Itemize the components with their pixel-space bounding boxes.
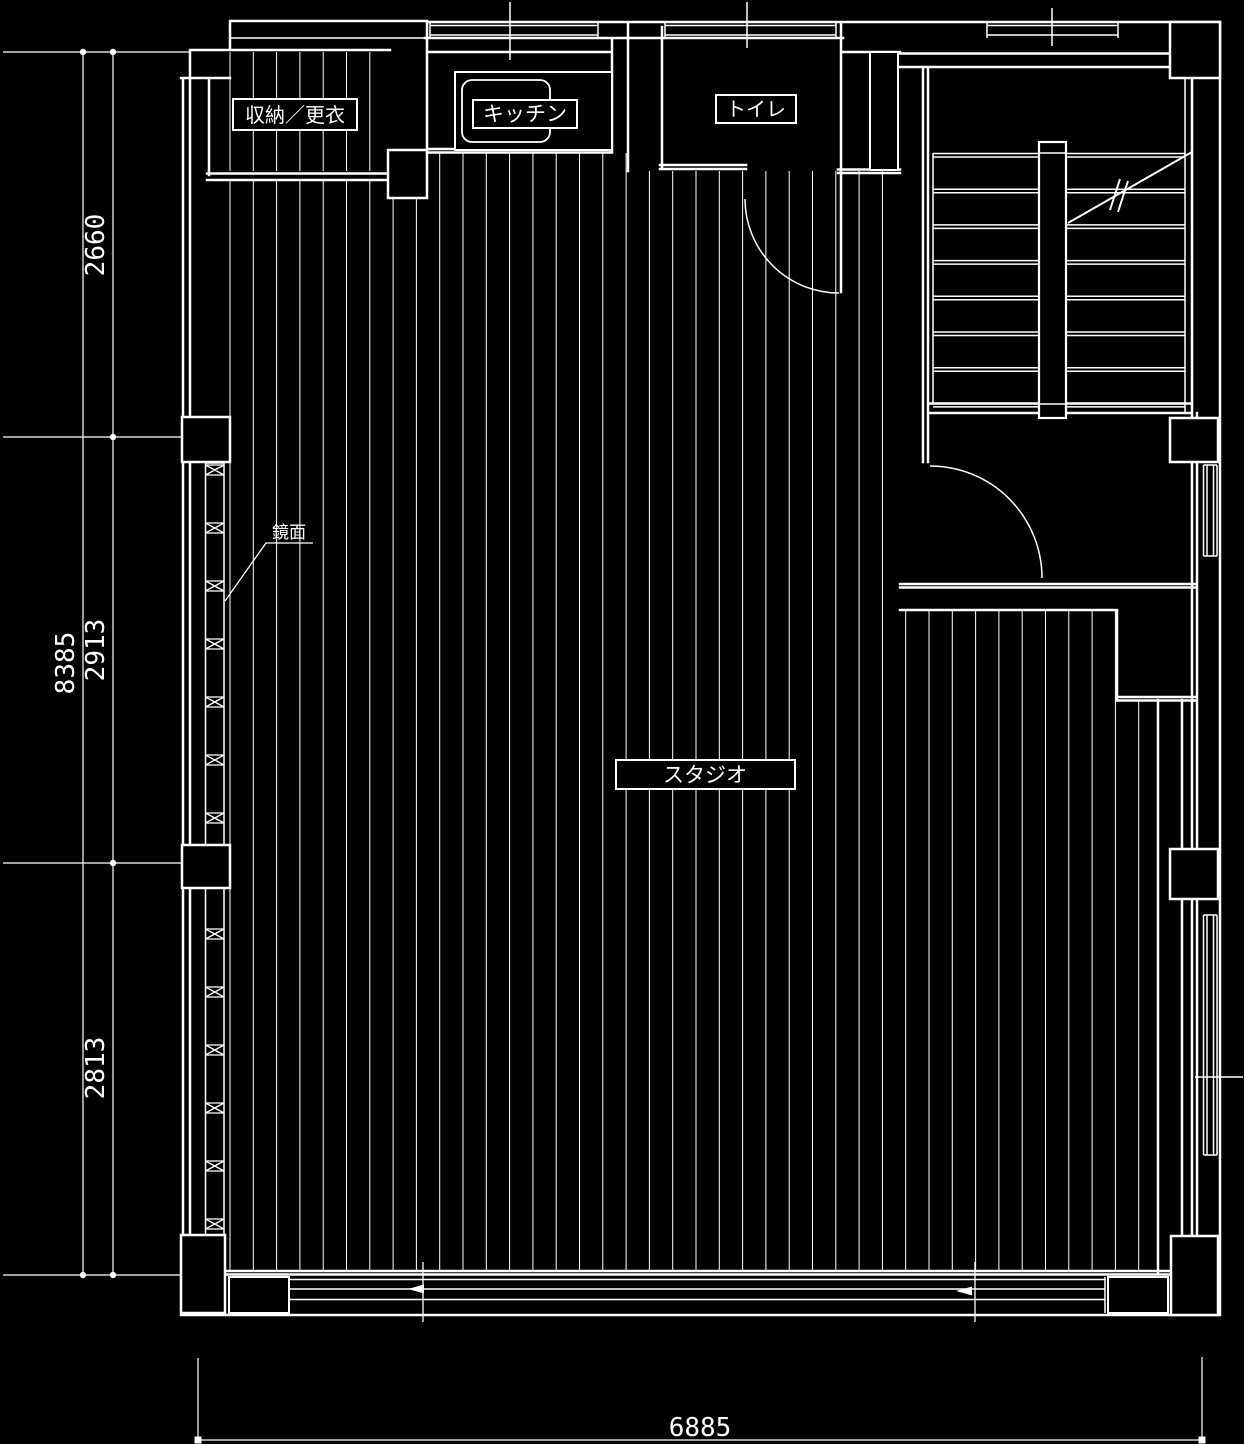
kitchen-label: キッチン — [483, 102, 567, 126]
dimension-left-bottom: 2813 — [81, 1037, 111, 1100]
pier-right-top — [1170, 22, 1220, 78]
pier-right-1 — [1170, 418, 1218, 462]
mirror-label: 鏡面 — [272, 523, 306, 543]
bottom-wall-spacer-right — [1108, 1277, 1168, 1313]
toilet-label: トイレ — [726, 97, 786, 121]
pier-storage-kitchen — [388, 150, 427, 198]
kitchen: キッチン — [455, 72, 612, 150]
pipe-duct — [870, 52, 898, 170]
stair-center-wall — [1039, 142, 1066, 418]
pier-left-1 — [182, 417, 230, 462]
pier-right-bottom — [1171, 1236, 1218, 1315]
studio-label: スタジオ — [663, 763, 747, 787]
pier-left-bottom — [181, 1235, 225, 1313]
pier-left-2 — [182, 845, 230, 888]
floor-plan-canvas: キッチン 収納／更衣 トイレ 鏡面 スタジオ — [0, 0, 1244, 1444]
studio: スタジオ — [616, 760, 795, 789]
dimension-left-top: 2660 — [81, 214, 111, 277]
dimension-bottom-width: 6885 — [669, 1413, 732, 1443]
floor-plan: キッチン 収納／更衣 トイレ 鏡面 スタジオ — [0, 0, 1244, 1444]
bottom-wall-spacer-left — [229, 1277, 289, 1313]
dimension-left-middle: 2913 — [81, 619, 111, 682]
storage-label: 収納／更衣 — [245, 103, 345, 127]
storage-room: 収納／更衣 — [233, 99, 357, 130]
dimension-left-outer-total: 8385 — [51, 632, 81, 695]
pier-right-2 — [1170, 849, 1218, 899]
